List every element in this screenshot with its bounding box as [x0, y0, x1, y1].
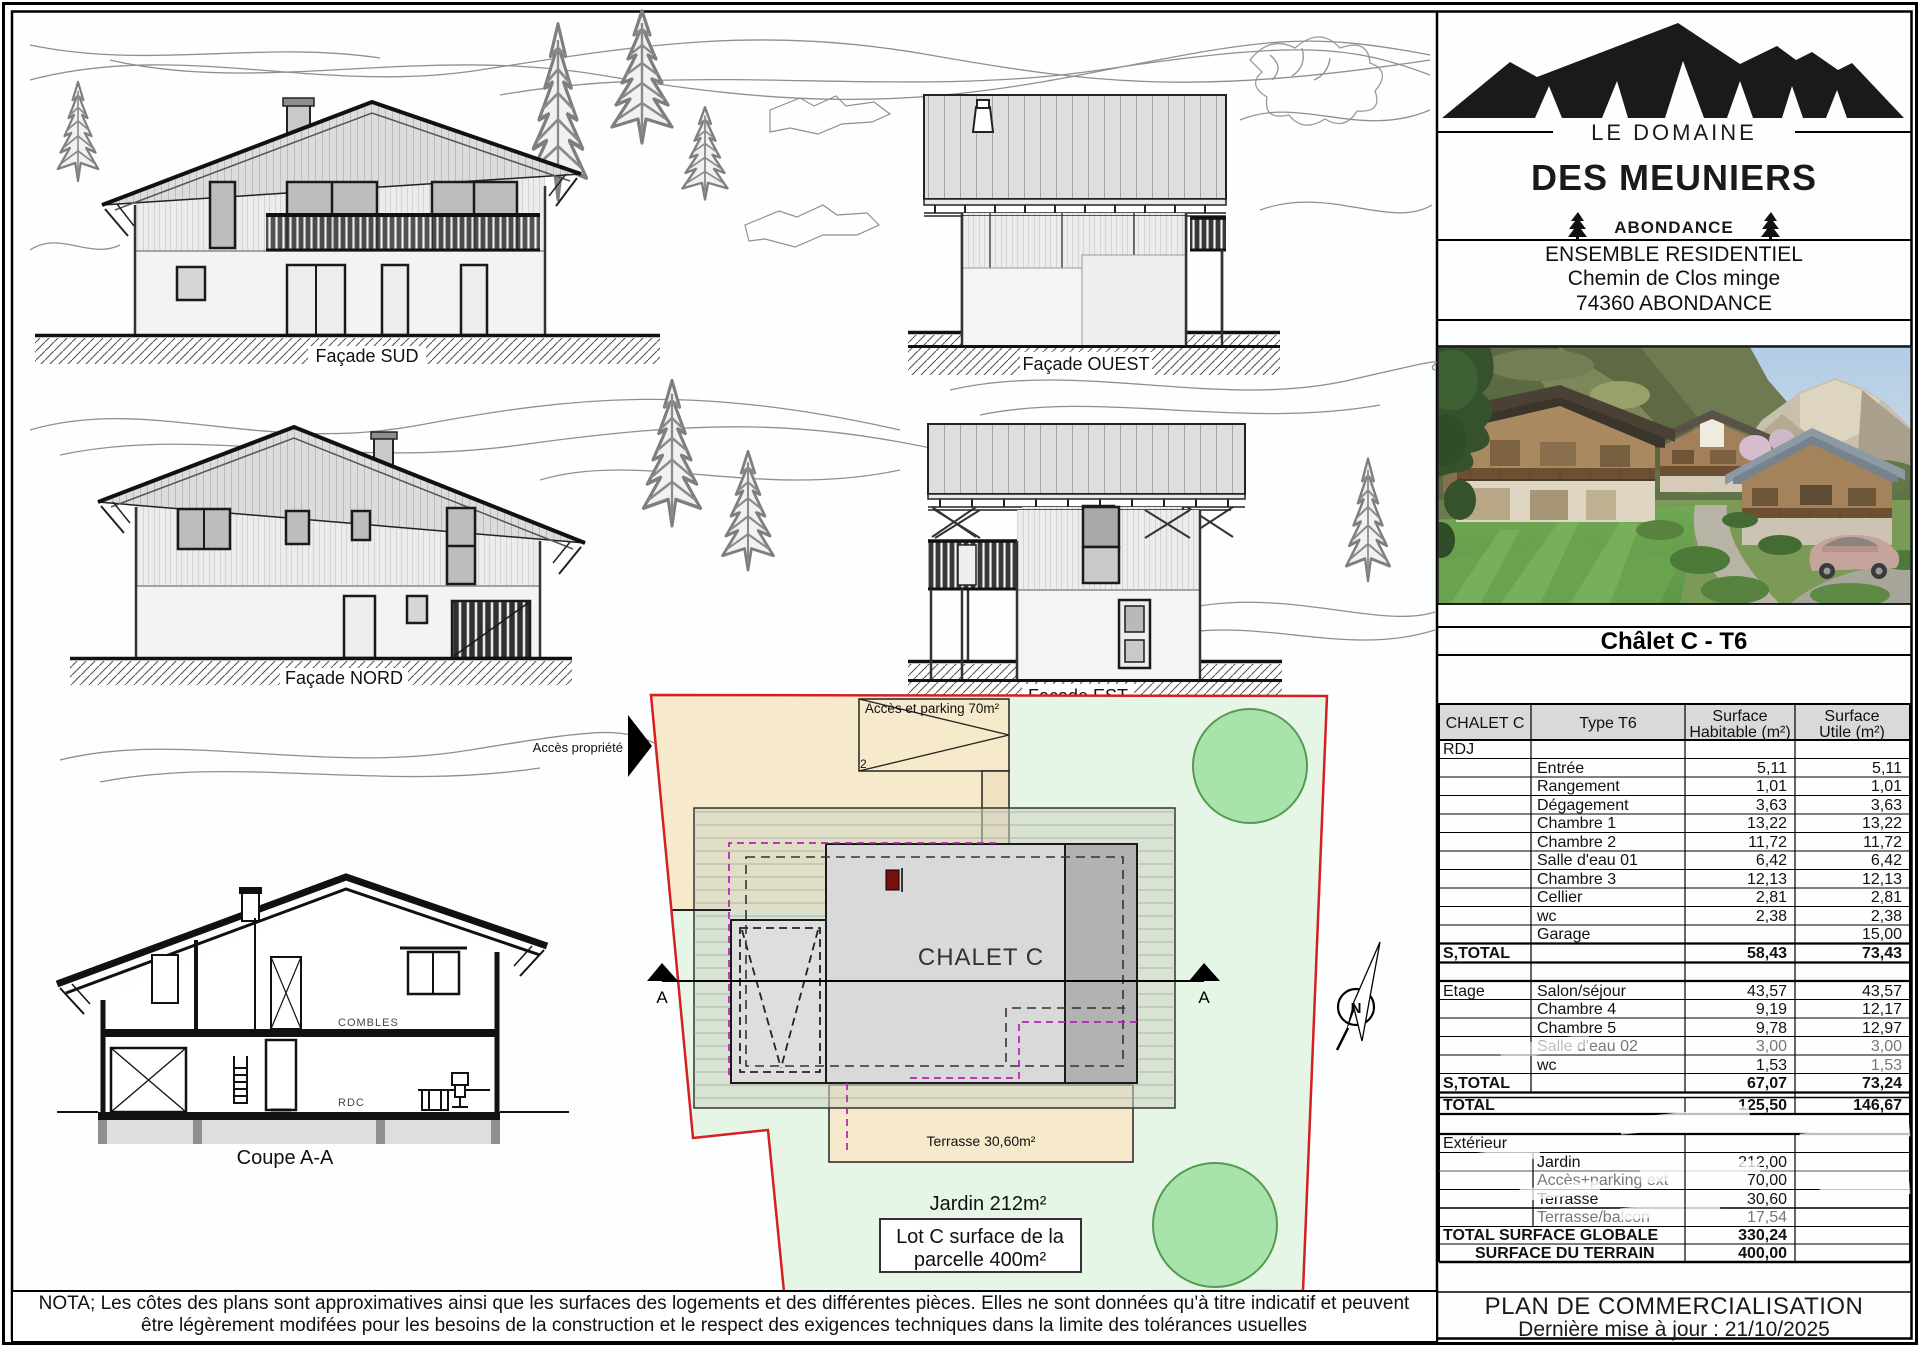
- svg-text:73,24: 73,24: [1862, 1075, 1902, 1092]
- svg-text:12,13: 12,13: [1747, 871, 1787, 888]
- svg-text:43,57: 43,57: [1862, 983, 1902, 1000]
- svg-text:TOTAL SURFACE GLOBALE: TOTAL SURFACE GLOBALE: [1443, 1227, 1658, 1244]
- svg-text:parcelle 400m²: parcelle 400m²: [914, 1249, 1047, 1271]
- svg-text:Jardin 212m²: Jardin 212m²: [930, 1193, 1047, 1215]
- svg-text:67,07: 67,07: [1747, 1075, 1787, 1092]
- svg-text:N: N: [1351, 1000, 1362, 1017]
- svg-text:74360 ABONDANCE: 74360 ABONDANCE: [1576, 292, 1772, 315]
- svg-text:Entrée: Entrée: [1537, 760, 1584, 777]
- svg-text:5,11: 5,11: [1757, 760, 1787, 777]
- svg-text:TOTAL: TOTAL: [1443, 1097, 1495, 1114]
- svg-text:COMBLES: COMBLES: [338, 1017, 399, 1029]
- svg-text:Salon/séjour: Salon/séjour: [1537, 983, 1627, 1000]
- svg-text:Etage: Etage: [1443, 983, 1485, 1000]
- svg-text:CHALET C: CHALET C: [1446, 715, 1525, 732]
- svg-text:1,53: 1,53: [1871, 1057, 1902, 1074]
- svg-text:Cellier: Cellier: [1537, 889, 1583, 906]
- svg-text:17,54: 17,54: [1747, 1209, 1787, 1226]
- svg-text:3,63: 3,63: [1871, 797, 1902, 814]
- svg-text:11,72: 11,72: [1863, 834, 1902, 851]
- svg-text:3,00: 3,00: [1871, 1038, 1902, 1055]
- svg-text:9,78: 9,78: [1756, 1020, 1787, 1037]
- svg-text:2,38: 2,38: [1756, 908, 1787, 925]
- svg-text:LE DOMAINE: LE DOMAINE: [1591, 120, 1757, 145]
- svg-text:Façade NORD: Façade NORD: [285, 668, 403, 688]
- svg-text:Salle d'eau 01: Salle d'eau 01: [1537, 852, 1638, 869]
- svg-text:Habitable (m²): Habitable (m²): [1689, 724, 1790, 741]
- svg-text:Chambre 4: Chambre 4: [1537, 1001, 1616, 1018]
- svg-text:Chambre 1: Chambre 1: [1537, 815, 1616, 832]
- svg-text:Chambre 3: Chambre 3: [1537, 871, 1616, 888]
- svg-text:6,42: 6,42: [1756, 852, 1787, 869]
- svg-text:A: A: [1198, 988, 1210, 1007]
- svg-text:S,TOTAL: S,TOTAL: [1443, 945, 1510, 962]
- svg-text:70,00: 70,00: [1747, 1172, 1787, 1189]
- svg-text:ENSEMBLE RESIDENTIEL: ENSEMBLE RESIDENTIEL: [1545, 243, 1803, 266]
- svg-text:Chambre 5: Chambre 5: [1537, 1020, 1616, 1037]
- svg-text:Terrasse 30,60m²: Terrasse 30,60m²: [927, 1133, 1036, 1149]
- svg-text:être légèrement modifées pour: être légèrement modifées pour les besoin…: [141, 1315, 1307, 1336]
- svg-text:Surface: Surface: [1824, 708, 1879, 725]
- svg-text:Jardin: Jardin: [1537, 1154, 1581, 1171]
- svg-text:43,57: 43,57: [1747, 983, 1787, 1000]
- svg-text:Façade OUEST: Façade OUEST: [1022, 354, 1149, 374]
- svg-text:RDC: RDC: [338, 1097, 365, 1109]
- svg-text:RDJ: RDJ: [1443, 741, 1474, 758]
- svg-text:3,63: 3,63: [1756, 797, 1787, 814]
- svg-text:30,60: 30,60: [1747, 1191, 1787, 1208]
- svg-text:12,97: 12,97: [1862, 1020, 1902, 1037]
- svg-text:Façade SUD: Façade SUD: [315, 346, 418, 366]
- svg-text:DES MEUNIERS: DES MEUNIERS: [1531, 157, 1817, 198]
- svg-text:1,01: 1,01: [1871, 778, 1902, 795]
- svg-text:58,43: 58,43: [1747, 945, 1787, 962]
- svg-text:12,13: 12,13: [1862, 871, 1902, 888]
- svg-text:2: 2: [860, 757, 867, 771]
- svg-text:Lot C surface de la: Lot C surface de la: [896, 1226, 1065, 1248]
- svg-text:Dernière mise à jour : 21/10/2: Dernière mise à jour : 21/10/2025: [1518, 1318, 1830, 1341]
- svg-text:CHALET C: CHALET C: [918, 944, 1044, 971]
- svg-text:2,81: 2,81: [1871, 889, 1902, 906]
- svg-text:Coupe A-A: Coupe A-A: [237, 1147, 334, 1169]
- svg-text:Accès et parking 70m²: Accès et parking 70m²: [865, 701, 1000, 716]
- svg-text:13,22: 13,22: [1747, 815, 1787, 832]
- svg-text:wc: wc: [1536, 908, 1557, 925]
- svg-text:Extérieur: Extérieur: [1443, 1135, 1508, 1152]
- svg-text:S,TOTAL: S,TOTAL: [1443, 1075, 1510, 1092]
- svg-text:Garage: Garage: [1537, 926, 1590, 943]
- svg-text:2,38: 2,38: [1871, 908, 1902, 925]
- svg-text:146,67: 146,67: [1853, 1097, 1902, 1114]
- svg-text:PLAN DE COMMERCIALISATION: PLAN DE COMMERCIALISATION: [1485, 1293, 1864, 1320]
- svg-text:Rangement: Rangement: [1537, 778, 1620, 795]
- svg-text:11,72: 11,72: [1748, 834, 1787, 851]
- svg-text:Type T6: Type T6: [1579, 715, 1637, 732]
- svg-text:SURFACE DU TERRAIN: SURFACE DU TERRAIN: [1475, 1245, 1655, 1262]
- svg-text:Chambre 2: Chambre 2: [1537, 834, 1616, 851]
- svg-text:Utile (m²): Utile (m²): [1819, 724, 1885, 741]
- svg-text:Chemin de Clos minge: Chemin de Clos minge: [1568, 267, 1780, 290]
- svg-text:9,19: 9,19: [1756, 1001, 1787, 1018]
- svg-text:5,11: 5,11: [1872, 760, 1902, 777]
- svg-text:2,81: 2,81: [1756, 889, 1787, 906]
- svg-text:1,53: 1,53: [1756, 1057, 1787, 1074]
- svg-text:12,17: 12,17: [1862, 1001, 1902, 1018]
- svg-text:73,43: 73,43: [1862, 945, 1902, 962]
- svg-text:Dégagement: Dégagement: [1537, 797, 1629, 814]
- svg-text:1,01: 1,01: [1756, 778, 1787, 795]
- svg-text:NOTA; Les côtes des plans sont: NOTA; Les côtes des plans sont approxima…: [39, 1293, 1410, 1314]
- svg-text:13,22: 13,22: [1862, 815, 1902, 832]
- svg-text:wc: wc: [1536, 1057, 1557, 1074]
- svg-text:Surface: Surface: [1712, 708, 1767, 725]
- svg-text:A: A: [656, 988, 668, 1007]
- svg-text:3,00: 3,00: [1756, 1038, 1787, 1055]
- svg-text:400,00: 400,00: [1738, 1245, 1787, 1262]
- svg-text:15,00: 15,00: [1862, 926, 1902, 943]
- svg-text:Accès propriété: Accès propriété: [533, 740, 623, 755]
- svg-text:Châlet C - T6: Châlet C - T6: [1601, 628, 1748, 655]
- svg-text:6,42: 6,42: [1871, 852, 1902, 869]
- svg-text:ABONDANCE: ABONDANCE: [1614, 218, 1734, 237]
- svg-text:330,24: 330,24: [1738, 1227, 1787, 1244]
